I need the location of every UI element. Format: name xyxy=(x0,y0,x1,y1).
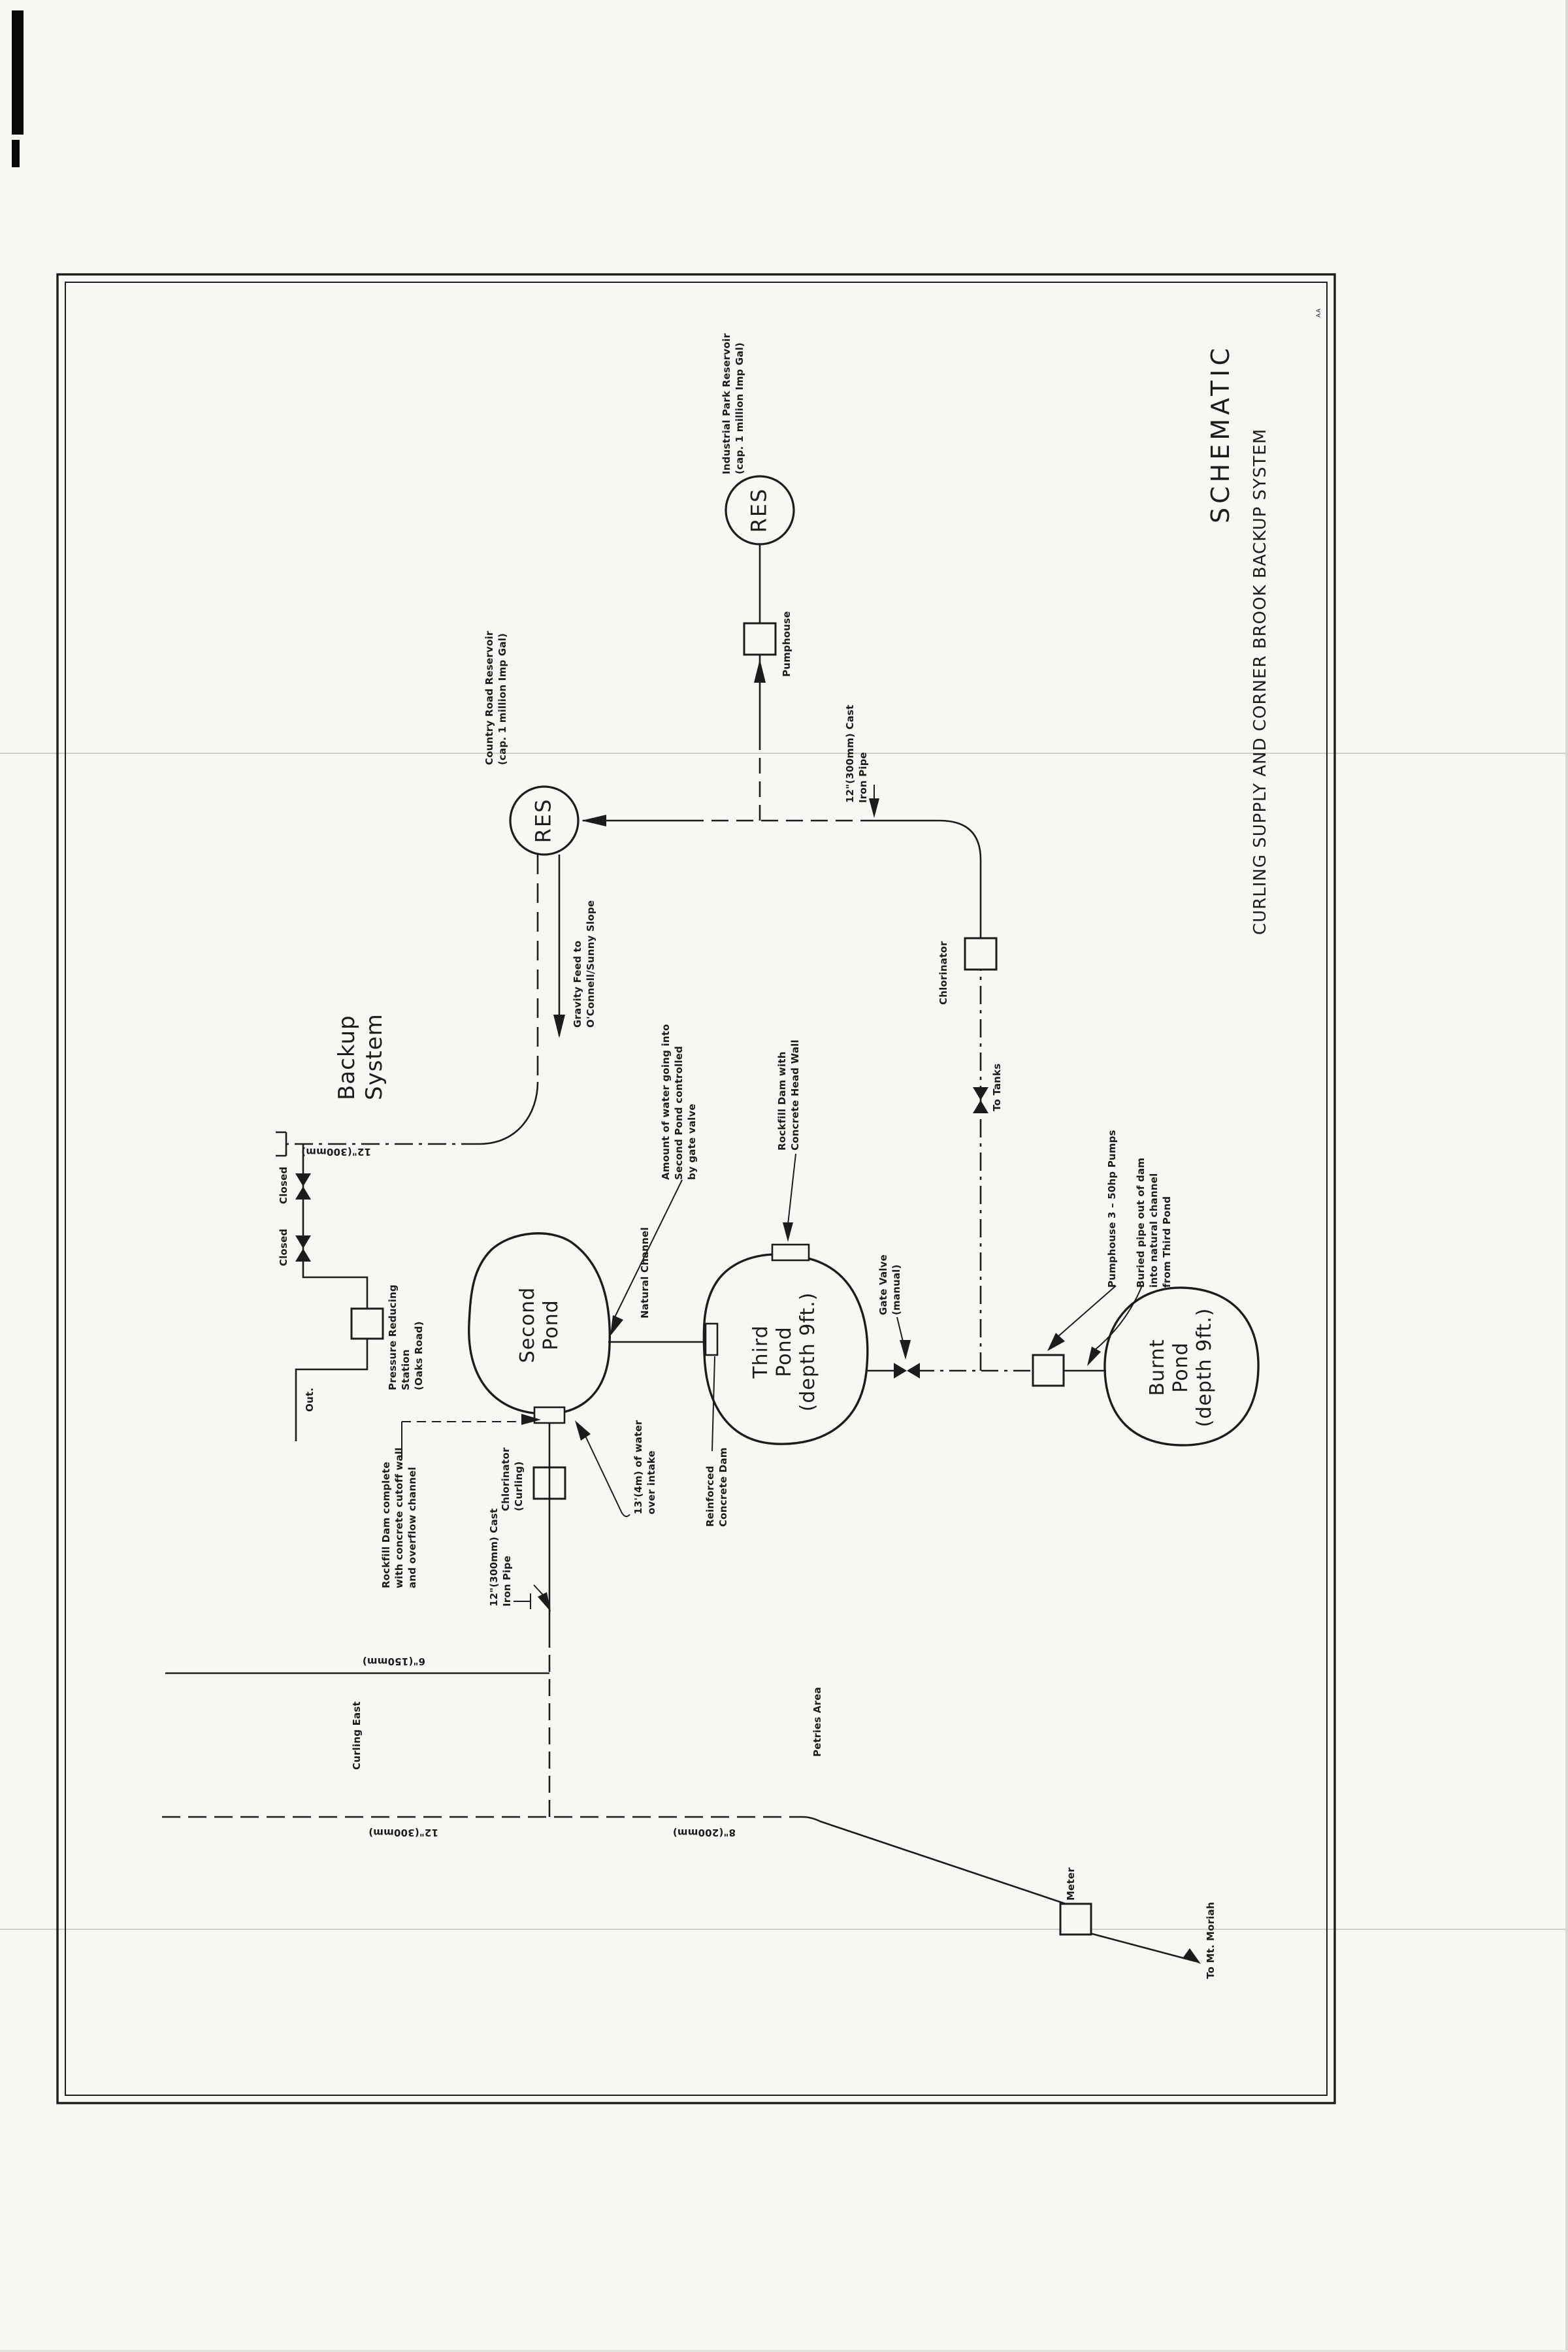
second-pond-intake-rect xyxy=(534,1407,564,1423)
gate-valve-symbol xyxy=(894,1363,920,1379)
closed-valve-2-symbol xyxy=(295,1235,311,1262)
arrow-gate-valve-leader xyxy=(900,1340,911,1360)
main-to-meter-diagonal xyxy=(803,1817,1066,1904)
label-closed-valve-1: Closed xyxy=(277,1167,290,1205)
scanner-edge-mark-small xyxy=(12,140,20,167)
arrow-gravity-feed xyxy=(553,1015,565,1038)
scanner-edge-mark xyxy=(12,10,24,135)
label-petries-area: Petries Area xyxy=(811,1687,824,1757)
label-gravity-feed: Gravity Feed to O'Connell/Sunny Slope xyxy=(571,900,597,1028)
meter-square xyxy=(1060,1904,1091,1935)
arrow-pumphouse3-leader xyxy=(1047,1333,1065,1351)
label-out: Out. xyxy=(303,1388,316,1412)
pond-name-third: Third Pond (depth 9ft.) xyxy=(749,1292,820,1412)
label-rockfill-complete: Rockfill Dam complete with concrete cuto… xyxy=(380,1447,419,1588)
prs-branch-line xyxy=(303,1144,367,1309)
label-gate-valve: Gate Valve (manual) xyxy=(877,1254,903,1315)
paper-edge-shadow xyxy=(1565,0,1568,2352)
label-to-tanks: To Tanks xyxy=(990,1064,1004,1111)
meter-to-moriah-line xyxy=(1090,1933,1196,1961)
label-cast-iron-pipe-right: 12"(300mm) Cast Iron Pipe xyxy=(843,705,870,803)
arrow-water-intake-leader xyxy=(575,1420,591,1441)
label-water-over-intake: 13'(4m) of water over intake xyxy=(632,1420,658,1514)
arrow-to-pumphouse xyxy=(754,659,766,683)
pressure-reducing-station-square xyxy=(351,1309,383,1339)
label-to-mt-moriah: To Mt. Moriah xyxy=(1204,1902,1217,1979)
schematic-landscape-canvas: Industrial Park Reservoir (cap. 1 millio… xyxy=(56,273,1336,2104)
label-pumphouse-3: Pumphouse 3 – 50hp Pumps xyxy=(1105,1130,1119,1288)
label-reinforced-dam: Reinforced Concrete Dam xyxy=(704,1447,730,1527)
arrow-to-mt-moriah xyxy=(1183,1948,1201,1964)
chlorinator-main-square xyxy=(965,938,996,970)
res-text-country-road: RES xyxy=(531,798,555,843)
label-curling-east: Curling East xyxy=(350,1701,363,1770)
label-chlorinator-main: Chlorinator xyxy=(937,941,950,1005)
industrial-pumphouse-square xyxy=(744,623,776,655)
label-closed-valve-2: Closed xyxy=(277,1229,290,1267)
label-country-road-reservoir: Country Road Reservoir (cap. 1 million I… xyxy=(483,631,509,765)
label-industrial-park-reservoir: Industrial Park Reservoir (cap. 1 millio… xyxy=(720,333,746,474)
label-pressure-reducing-station: Pressure Reducing Station (Oaks Road) xyxy=(386,1284,425,1390)
to-tanks-valve-symbol xyxy=(973,1087,988,1113)
drawing-title: SCHEMATIC xyxy=(1206,344,1235,523)
rockfill-head-wall-rect xyxy=(772,1245,809,1260)
arrow-into-country-res xyxy=(581,815,606,826)
closed-valve-1-symbol xyxy=(295,1173,311,1200)
label-cast-iron-pipe-curling: 12"(300mm) Cast Iron Pipe xyxy=(487,1509,514,1607)
label-pipe-size-6in: 6"(150mm) xyxy=(363,1655,425,1668)
label-meter: Meter xyxy=(1064,1867,1077,1901)
pond-name-burnt: Burnt Pond (depth 9ft.) xyxy=(1146,1308,1217,1428)
reinforced-dam-rect xyxy=(706,1324,717,1355)
label-pipe-size-backup: 12"(300mm) xyxy=(301,1145,371,1158)
label-backup-system: Backup System xyxy=(333,1013,388,1100)
arrow-cast-iron-leader xyxy=(869,798,879,818)
pond-name-second: Second Pond xyxy=(516,1287,563,1363)
label-chlorinator-curling: Chlorinator (Curling) xyxy=(499,1447,525,1511)
gravity-to-backup-curve xyxy=(480,1082,538,1144)
label-pumphouse-industrial: Pumphouse xyxy=(780,611,793,677)
drawing-sheet: Industrial Park Reservoir (cap. 1 millio… xyxy=(56,273,1336,2104)
arrow-amount-of-water xyxy=(610,1315,623,1336)
label-amount-of-water: Amount of water going into Second Pond c… xyxy=(659,1024,698,1180)
label-buried-pipe: Buried pipe out of dam into natural chan… xyxy=(1134,1158,1173,1288)
backup-end-cap xyxy=(276,1132,286,1156)
chlorinator-to-res-curve xyxy=(877,821,981,938)
arrow-buried-pipe-leader xyxy=(1087,1347,1101,1366)
scanned-schematic-page: { "title_block": { "title": "SCHEMATIC",… xyxy=(0,0,1568,2352)
pumphouse3-square xyxy=(1033,1355,1064,1386)
res-text-industrial: RES xyxy=(746,488,771,533)
label-pipe-size-8-main: 8"(200mm) xyxy=(673,1826,736,1839)
label-rockfill-head-wall: Rockfill Dam with Concrete Head Wall xyxy=(776,1039,802,1151)
corner-mark: AA xyxy=(1316,308,1322,318)
arrow-head-wall-leader xyxy=(783,1222,793,1242)
drawing-subtitle: CURLING SUPPLY AND CORNER BROOK BACKUP S… xyxy=(1250,429,1270,935)
label-pipe-size-12-main: 12"(300mm) xyxy=(368,1826,438,1839)
label-natural-channel: Natural Channel xyxy=(638,1227,651,1318)
